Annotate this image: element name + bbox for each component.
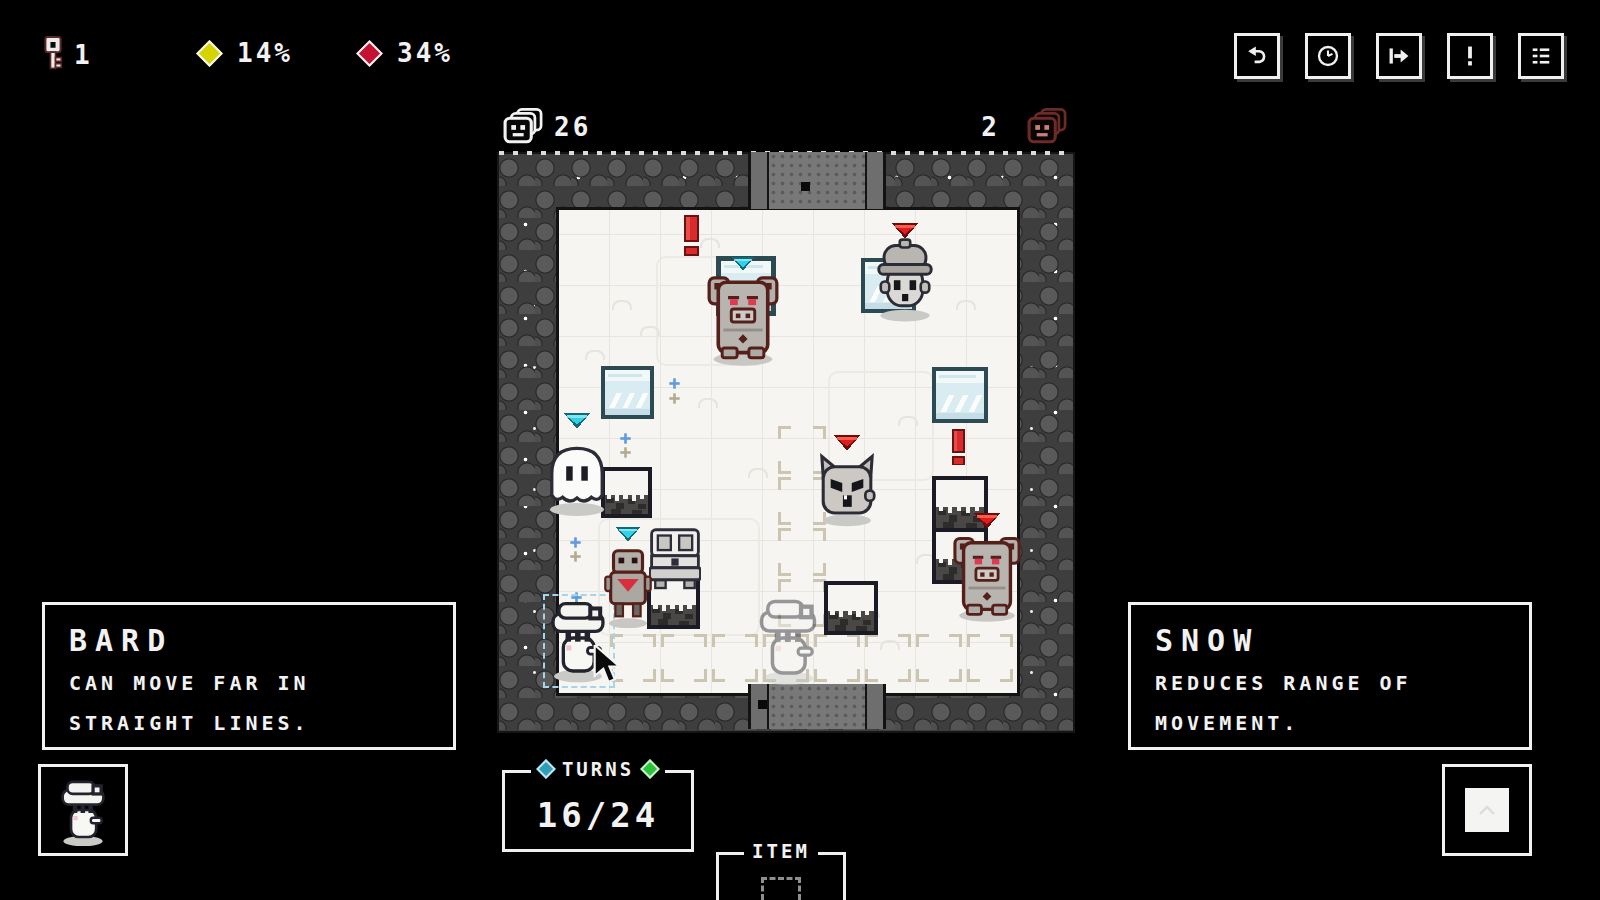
alert-icon [1457, 43, 1483, 69]
door-bottom-panel [767, 684, 867, 729]
log-icon [1528, 43, 1554, 69]
unit-info-line1: CAN MOVE FAR IN [69, 663, 429, 703]
item-legend: ITEM [719, 840, 843, 862]
item-panel: ITEM [716, 852, 846, 900]
bard-portrait [54, 774, 112, 846]
tile-info-line1: REDUCES RANGE OF [1155, 663, 1505, 703]
deck-count-right: 2 [960, 112, 1000, 142]
key-icon [42, 34, 64, 76]
enemy-deck-right [1026, 108, 1070, 152]
undo-button[interactable] [1234, 33, 1280, 79]
door-top-pip [801, 182, 810, 191]
character-portrait-button[interactable] [38, 764, 128, 856]
toolbar [1234, 33, 1564, 79]
turns-legend: TURNS [505, 758, 691, 780]
door-bottom[interactable] [748, 684, 886, 729]
dungeon-floor [556, 207, 1020, 696]
deck-icon-white [502, 108, 546, 148]
unit-info-line2: STRAIGHT LINES. [69, 703, 429, 743]
clock-icon [1315, 43, 1341, 69]
game-screen: 1 14% 34% [0, 0, 1600, 900]
turns-green-gem-icon [640, 759, 660, 779]
unit-info-title: BARD [69, 619, 429, 663]
yellow-gem-icon [196, 40, 223, 67]
end-turn-icon [1386, 43, 1412, 69]
deck-count-left: 26 [554, 112, 591, 142]
door-bottom-pip [758, 700, 767, 709]
tile-info-panel: SNOW REDUCES RANGE OF MOVEMENT. [1128, 602, 1532, 750]
red-gem-icon [356, 40, 383, 67]
turns-blue-gem-icon [536, 759, 556, 779]
undo-icon [1244, 43, 1270, 69]
tile-preview-button[interactable] [1442, 764, 1532, 856]
yellow-percent: 14% [237, 38, 293, 68]
end-turn-button[interactable] [1376, 33, 1422, 79]
door-top[interactable] [748, 152, 886, 209]
key-counter: 1 [42, 34, 93, 76]
door-top-panel [767, 152, 867, 209]
key-count: 1 [74, 40, 93, 70]
turns-label: TURNS [562, 758, 634, 780]
alerts-button[interactable] [1447, 33, 1493, 79]
wait-button[interactable] [1305, 33, 1351, 79]
red-gem-counter: 34% [360, 38, 453, 68]
log-button[interactable] [1518, 33, 1564, 79]
tile-info-title: SNOW [1155, 619, 1505, 663]
unit-info-panel: BARD CAN MOVE FAR IN STRAIGHT LINES. [42, 602, 456, 750]
deck-icon-red [1026, 108, 1070, 148]
red-percent: 34% [397, 38, 453, 68]
tile-info-line2: MOVEMENT. [1155, 703, 1505, 743]
enemy-deck-left [502, 108, 546, 152]
snow-tile-icon [1465, 788, 1509, 832]
yellow-gem-counter: 14% [200, 38, 293, 68]
item-label: ITEM [752, 840, 810, 862]
turns-value: 16/24 [505, 795, 691, 835]
turns-panel: TURNS 16/24 [502, 770, 694, 852]
item-slot-empty[interactable] [761, 877, 801, 900]
